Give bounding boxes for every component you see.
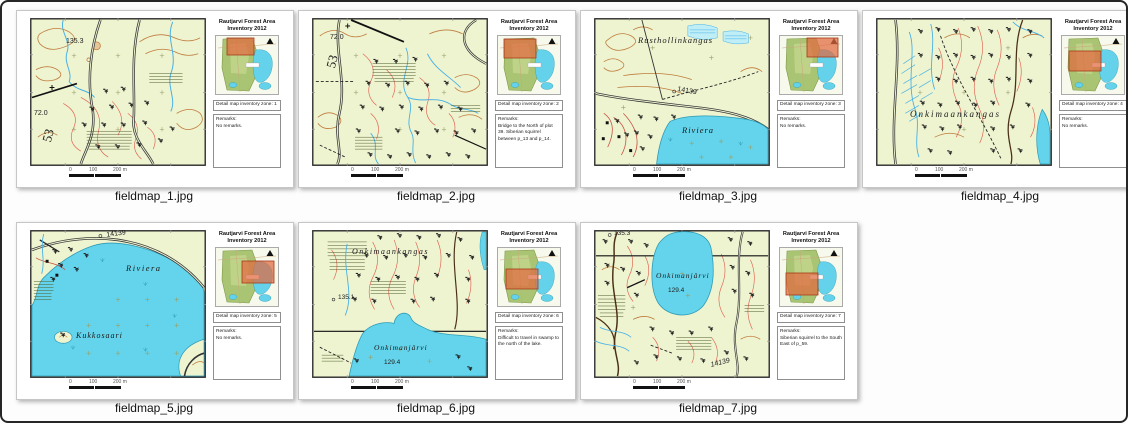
map-title: Rautjarvi Forest AreaInventory 2012 (1057, 19, 1128, 32)
map-sidebar: Rautjarvi Forest AreaInventory 2012 Deta… (493, 231, 565, 380)
overview-map-graphic (498, 36, 560, 94)
scale-tick: 0 (633, 379, 636, 385)
overview-map-graphic (1062, 36, 1124, 94)
topo-map-graphic (594, 230, 770, 378)
remarks-box: Remarks: No remarks. (213, 114, 281, 168)
filename-caption: fieldmap_1.jpg (16, 189, 292, 203)
scale-bar: 0 100 200 m (581, 167, 771, 183)
map-label: Kukkosaari (76, 332, 123, 340)
scale-bar: 0 100 200 m (863, 167, 1053, 183)
map-label: Rusthollinkangas (638, 36, 713, 45)
scale-tick: 200 m (959, 167, 973, 173)
scale-bar: 0 100 200 m (299, 167, 489, 183)
map-fieldmap-6: Onkimaankangas 135.1 Onkimanjärvi 129.4 (312, 230, 488, 378)
map-fieldmap-2: 72.0 53 (312, 18, 488, 166)
remarks-text: No remarks. (216, 336, 278, 342)
remarks-box: Remarks: No remarks. (1059, 114, 1127, 168)
map-label: Onkimanjärvi (656, 272, 710, 280)
scale-tick: 0 (69, 379, 72, 385)
zone-highlight (504, 39, 536, 58)
scale-bar: 0 100 200 m (581, 379, 771, 395)
map-label: Riviera (126, 264, 162, 273)
map-label: 129.4 (384, 360, 400, 367)
scale-tick: 200 m (677, 167, 691, 173)
overview-map-graphic (780, 36, 842, 94)
filename-caption: fieldmap_6.jpg (298, 401, 574, 415)
scale-tick: 0 (351, 379, 354, 385)
overview-map-graphic (780, 248, 842, 306)
remarks-box: Remarks: Difficult to travel in swamp to… (495, 326, 563, 380)
map-label: 72.0 (34, 110, 48, 117)
map-label: Onkimaankangas (910, 110, 1001, 119)
overview-map (779, 247, 843, 307)
overview-map-graphic (216, 36, 278, 94)
thumbnail-gallery: 135.3 72.0 53 0 100 200 m Rautjarvi Fore… (0, 0, 1128, 423)
filename-caption: fieldmap_2.jpg (298, 189, 574, 203)
scale-tick: 0 (915, 167, 918, 173)
scale-tick: 100 (935, 167, 943, 173)
map-label: 72.0 (330, 34, 344, 41)
scale-tick: 200 m (113, 167, 127, 173)
scale-tick: 100 (653, 167, 661, 173)
scale-tick: 0 (69, 167, 72, 173)
map-sidebar: Rautjarvi Forest AreaInventory 2012 Deta… (1057, 19, 1128, 168)
overview-map-graphic (216, 248, 278, 306)
scale-bar: 0 100 200 m (299, 379, 489, 395)
map-fieldmap-5: 14139 Riviera Kukkosaari (30, 230, 206, 378)
zone-highlight (1069, 51, 1101, 71)
zone-input-box: Detail map inventory zone: 3 (777, 100, 845, 111)
thumbnail-fieldmap-4[interactable]: Onkimaankangas 0 100 200 m Rautjarvi For… (862, 10, 1128, 188)
map-fieldmap-3: Rusthollinkangas 14139 Riviera (594, 18, 770, 166)
remarks-text: No remarks. (1062, 124, 1124, 130)
zone-highlight (506, 269, 538, 289)
map-sidebar: Rautjarvi Forest AreaInventory 2012 Deta… (775, 19, 847, 168)
scale-tick: 200 m (395, 167, 409, 173)
overview-map-graphic (498, 248, 560, 306)
topo-map-graphic (30, 18, 206, 166)
remarks-box: Remarks: No remarks. (213, 326, 281, 380)
scale-bar-rule (915, 174, 967, 177)
scale-bar-rule (351, 174, 403, 177)
scale-tick: 100 (371, 379, 379, 385)
thumbnail-fieldmap-2[interactable]: 72.0 53 0 100 200 m Rautjarvi Forest Are… (298, 10, 576, 188)
map-title: Rautjarvi Forest AreaInventory 2012 (493, 231, 565, 244)
scale-bar-rule (351, 386, 403, 389)
thumbnail-fieldmap-6[interactable]: Onkimaankangas 135.1 Onkimanjärvi 129.4 … (298, 222, 576, 400)
map-label: 135.1 (338, 295, 354, 302)
scale-tick: 200 m (395, 379, 409, 385)
scale-tick: 0 (351, 167, 354, 173)
filename-caption: fieldmap_4.jpg (862, 189, 1128, 203)
scale-bar-rule (69, 174, 121, 177)
zone-highlight (227, 38, 254, 55)
map-title: Rautjarvi Forest AreaInventory 2012 (493, 19, 565, 32)
zone-input-box: Detail map inventory zone: 5 (213, 312, 281, 323)
overview-map (1061, 35, 1125, 95)
scale-tick: 200 m (113, 379, 127, 385)
remarks-box: Remarks: Bridge to the North of plot 39.… (495, 114, 563, 168)
topo-map-graphic (30, 230, 206, 378)
remarks-text: Difficult to travel in swamp to the nort… (498, 336, 560, 349)
remarks-box: Remarks: Siberian squirrel to the South … (777, 326, 845, 380)
map-title: Rautjarvi Forest AreaInventory 2012 (211, 231, 283, 244)
map-label: 135.3 (66, 38, 84, 45)
scale-tick: 100 (89, 379, 97, 385)
filename-caption: fieldmap_5.jpg (16, 401, 292, 415)
scale-tick: 100 (89, 167, 97, 173)
thumbnail-fieldmap-7[interactable]: 135.3 Onkimanjärvi 129.4 14139 0 100 200… (580, 222, 858, 400)
remarks-text: Siberian squirrel to the South East of p… (780, 336, 842, 349)
scale-bar: 0 100 200 m (17, 379, 207, 395)
overview-map (215, 35, 279, 95)
map-title: Rautjarvi Forest AreaInventory 2012 (775, 19, 847, 32)
remarks-text: Bridge to the North of plot 39. Siberian… (498, 124, 560, 143)
scale-bar-rule (633, 174, 685, 177)
map-label: 135.3 (614, 231, 630, 238)
scale-bar-rule (69, 386, 121, 389)
scale-tick: 0 (633, 167, 636, 173)
map-label: Riviera (682, 126, 714, 135)
map-fieldmap-7: 135.3 Onkimanjärvi 129.4 14139 (594, 230, 770, 378)
zone-highlight (242, 261, 274, 283)
thumbnail-fieldmap-1[interactable]: 135.3 72.0 53 0 100 200 m Rautjarvi Fore… (16, 10, 294, 188)
remarks-text: No remarks. (216, 124, 278, 130)
overview-map (215, 247, 279, 307)
overview-map (779, 35, 843, 95)
map-label: Onkimanjärvi (374, 344, 428, 352)
zone-input-box: Detail map inventory zone: 6 (495, 312, 563, 323)
map-fieldmap-4: Onkimaankangas (876, 18, 1052, 166)
zone-highlight (786, 273, 818, 295)
lake-riviera (657, 116, 768, 164)
map-title: Rautjarvi Forest AreaInventory 2012 (211, 19, 283, 32)
map-sidebar: Rautjarvi Forest AreaInventory 2012 Deta… (211, 231, 283, 380)
remarks-box: Remarks: No remarks. (777, 114, 845, 168)
map-sidebar: Rautjarvi Forest AreaInventory 2012 Deta… (211, 19, 283, 168)
thumbnail-fieldmap-3[interactable]: Rusthollinkangas 14139 Riviera 0 100 200… (580, 10, 858, 188)
scale-tick: 100 (653, 379, 661, 385)
zone-input-box: Detail map inventory zone: 4 (1059, 100, 1127, 111)
map-fieldmap-1: 135.3 72.0 53 (30, 18, 206, 166)
map-sidebar: Rautjarvi Forest AreaInventory 2012 Deta… (493, 19, 565, 168)
remarks-text: No remarks. (780, 124, 842, 130)
overview-map (497, 35, 561, 95)
zone-input-box: Detail map inventory zone: 7 (777, 312, 845, 323)
scale-bar: 0 100 200 m (17, 167, 207, 183)
scale-bar-rule (633, 386, 685, 389)
topo-map-graphic (876, 18, 1052, 166)
zone-highlight (807, 38, 838, 57)
map-title: Rautjarvi Forest AreaInventory 2012 (775, 231, 847, 244)
map-label: Onkimaankangas (352, 248, 429, 256)
filename-caption: fieldmap_7.jpg (580, 401, 856, 415)
zone-input-box: Detail map inventory zone: 2 (495, 100, 563, 111)
map-sidebar: Rautjarvi Forest AreaInventory 2012 Deta… (775, 231, 847, 380)
zone-input-box: Detail map inventory zone: 1 (213, 100, 281, 111)
scale-tick: 200 m (677, 379, 691, 385)
scale-tick: 100 (371, 167, 379, 173)
thumbnail-fieldmap-5[interactable]: 14139 Riviera Kukkosaari 0 100 200 m Rau… (16, 222, 294, 400)
map-label: 129.4 (668, 288, 684, 295)
overview-map (497, 247, 561, 307)
filename-caption: fieldmap_3.jpg (580, 189, 856, 203)
